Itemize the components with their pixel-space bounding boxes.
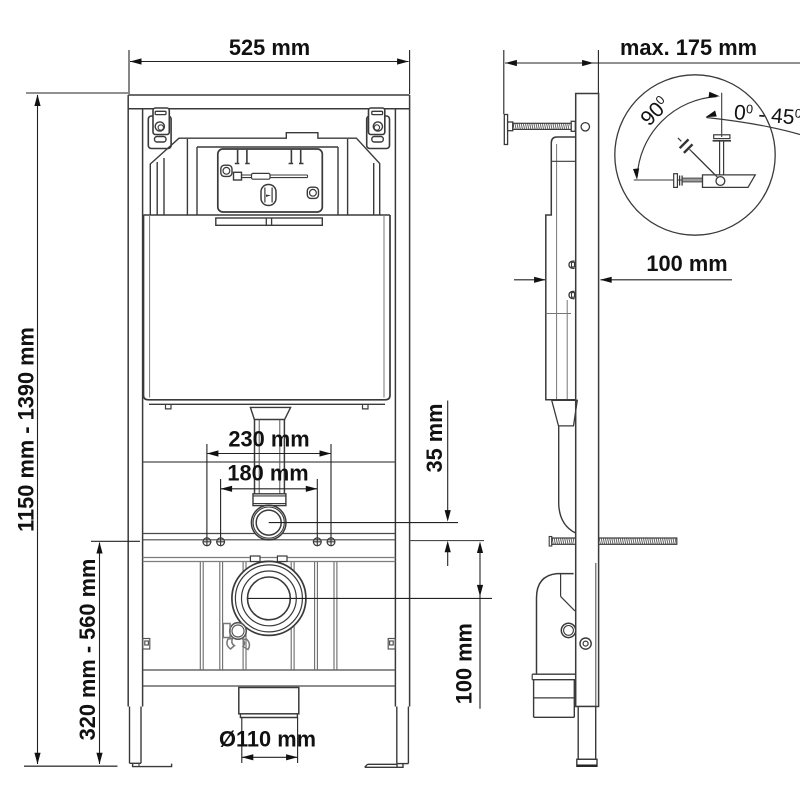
svg-text:320 mm - 560 mm: 320 mm - 560 mm [75, 559, 100, 741]
svg-text:100 mm: 100 mm [452, 623, 477, 704]
svg-text:Ø110 mm: Ø110 mm [219, 727, 316, 752]
svg-text:max. 175 mm: max. 175 mm [620, 35, 757, 60]
svg-text:1150 mm - 1390 mm: 1150 mm - 1390 mm [14, 327, 39, 532]
svg-text:525 mm: 525 mm [229, 35, 310, 60]
svg-text:230 mm: 230 mm [228, 427, 309, 452]
svg-text:35 mm: 35 mm [422, 403, 447, 472]
svg-text:100 mm: 100 mm [646, 251, 727, 276]
svg-text:180 mm: 180 mm [227, 461, 308, 486]
